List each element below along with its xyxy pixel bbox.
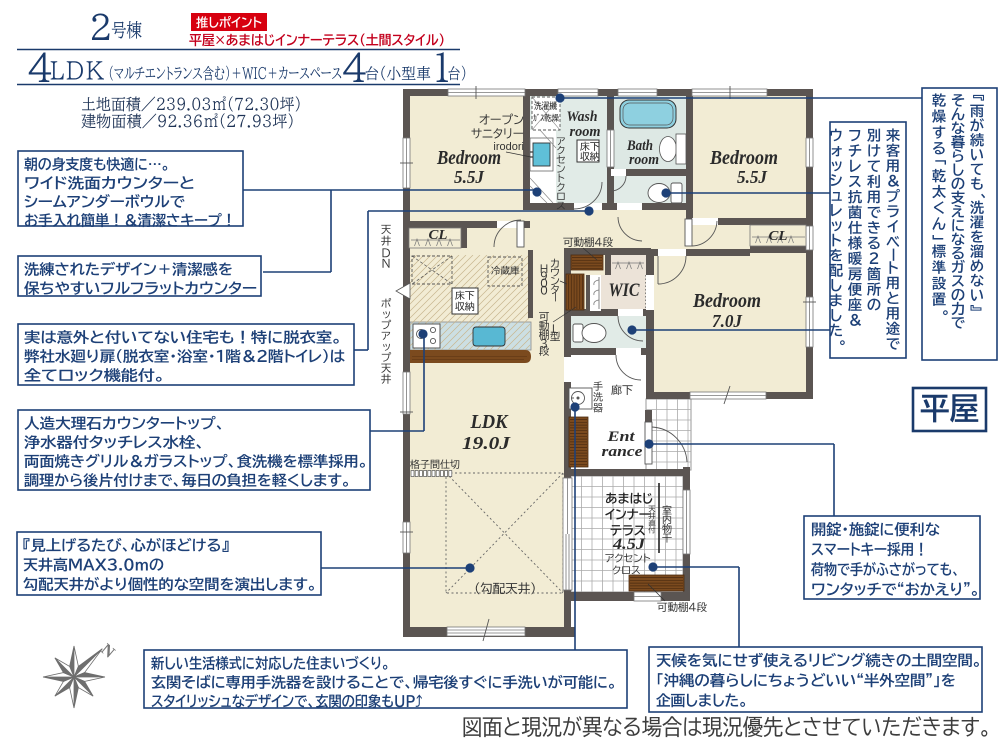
svg-text:Bedroom: Bedroom xyxy=(692,291,761,312)
svg-text:room: room xyxy=(570,124,601,140)
svg-text:rance: rance xyxy=(602,444,644,460)
svg-text:LDK: LDK xyxy=(470,411,509,433)
svg-text:Bedroom: Bedroom xyxy=(709,148,778,169)
svg-text:Bedroom: Bedroom xyxy=(436,148,501,169)
svg-text:WIC: WIC xyxy=(609,281,641,301)
svg-text:irodori: irodori xyxy=(493,141,524,153)
svg-text:CL: CL xyxy=(429,227,448,242)
svg-text:Ent: Ent xyxy=(606,429,635,445)
svg-text:CL: CL xyxy=(769,228,788,243)
svg-text:room: room xyxy=(629,152,659,168)
svg-text:7.0J: 7.0J xyxy=(712,311,743,331)
svg-text:19.0J: 19.0J xyxy=(462,433,511,453)
svg-text:5.5J: 5.5J xyxy=(454,167,485,187)
svg-text:Wash: Wash xyxy=(567,109,598,125)
svg-text:4.5J: 4.5J xyxy=(612,536,647,553)
svg-text:5.5J: 5.5J xyxy=(737,167,768,187)
